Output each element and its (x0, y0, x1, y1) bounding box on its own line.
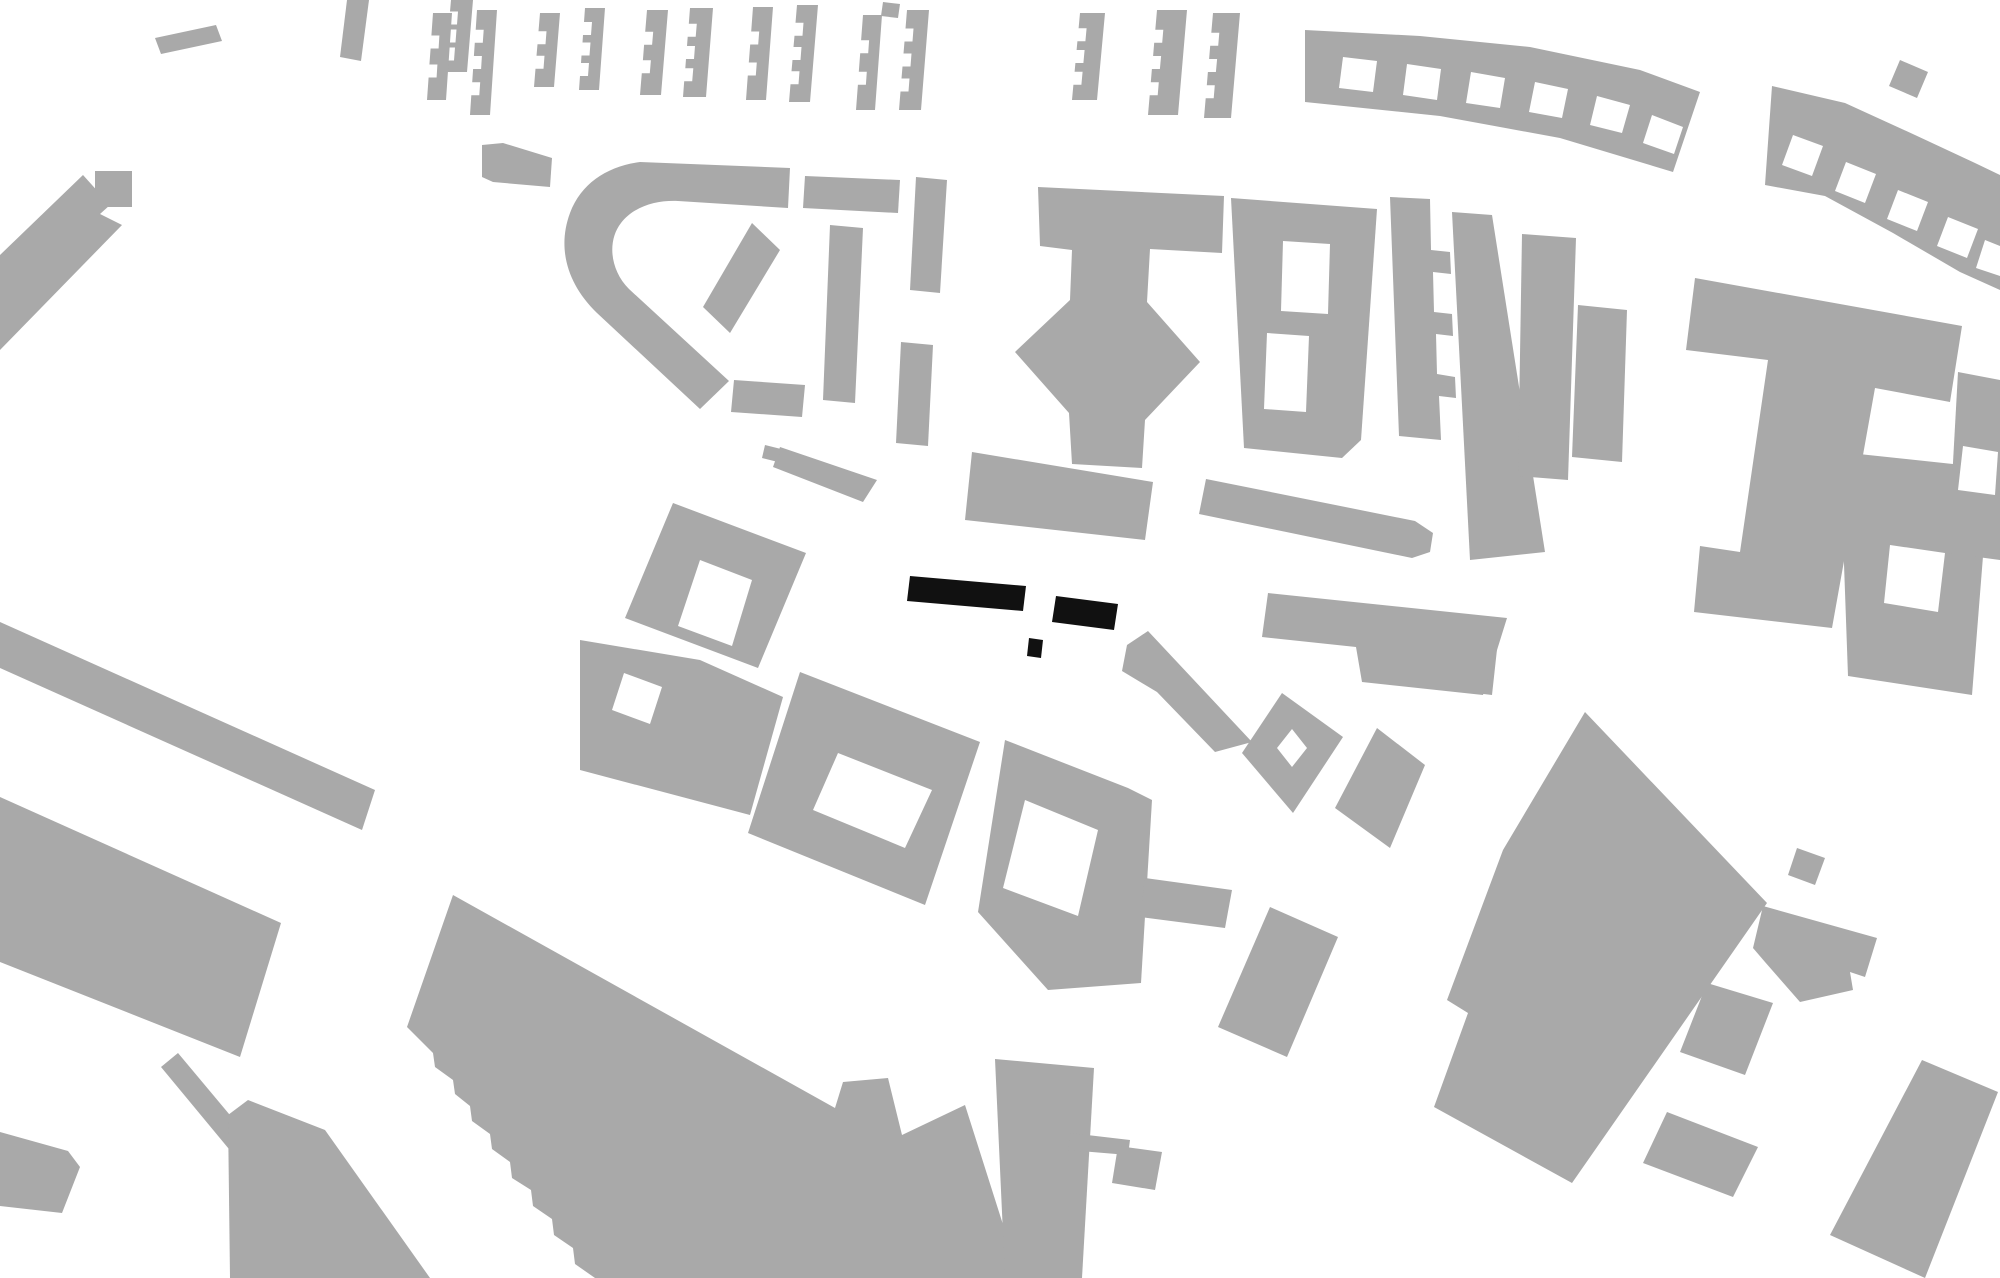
building-footprint (1112, 1146, 1162, 1190)
building-footprint (1231, 198, 1377, 458)
building-footprint (803, 176, 900, 213)
building-footprint (1518, 234, 1576, 480)
courtyard-opening (1281, 241, 1330, 314)
courtyard-opening (1466, 72, 1505, 108)
site-plan (0, 0, 2000, 1278)
courtyard-opening (1403, 64, 1441, 100)
building-footprint (896, 342, 933, 446)
courtyard-opening (1958, 446, 1998, 495)
building-footprint (881, 2, 900, 18)
courtyard-opening (1884, 545, 1945, 612)
site-plan-map (0, 0, 2000, 1278)
building-footprint (731, 380, 805, 417)
courtyard-opening (1264, 333, 1309, 412)
building-footprint (1572, 305, 1627, 462)
building-footprint (995, 1059, 1094, 1278)
courtyard-opening (1339, 57, 1377, 92)
highlighted-building-footprint (1027, 638, 1043, 658)
